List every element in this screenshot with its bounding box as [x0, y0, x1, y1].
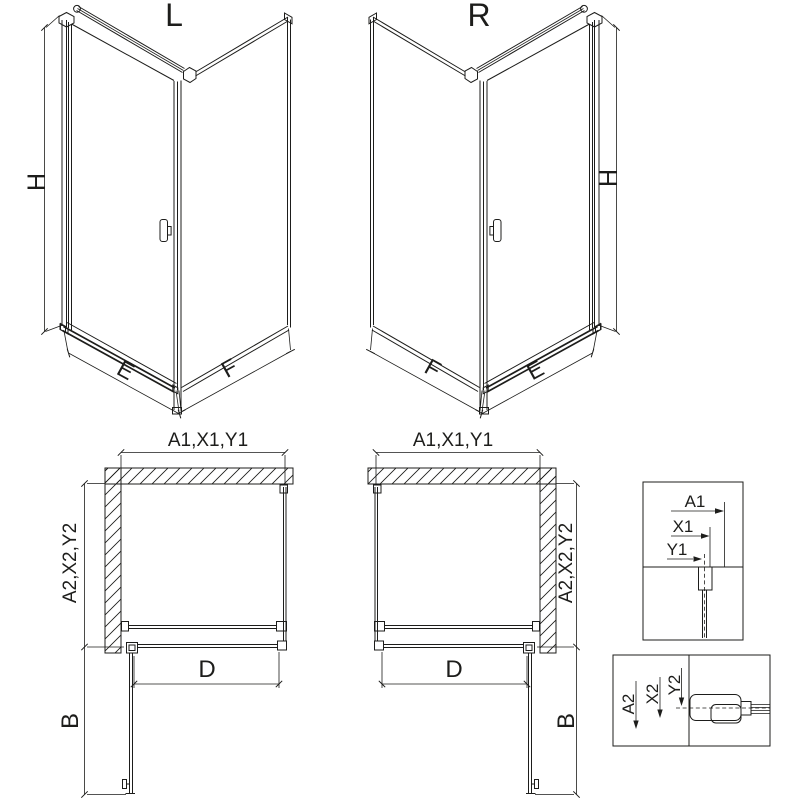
wall-section-side: [540, 468, 556, 653]
detail-dim-x1: X1: [673, 517, 694, 536]
plan-view-left: A1,X1,Y1 A2,X2,Y2 D B: [57, 430, 293, 798]
entry-dim-label: D: [445, 656, 462, 683]
bottom-rail-section: [690, 695, 741, 721]
arrow-right-icon: [701, 533, 710, 538]
door-width-dim-label: E: [522, 355, 548, 385]
arrow-right-icon: [715, 508, 724, 513]
variant-label-right: R: [467, 0, 490, 33]
enclosure-isometric-left: [41, 5, 294, 418]
entry-dim-label: D: [198, 656, 215, 683]
height-dim-label: H: [23, 173, 51, 191]
arrow-down-icon: [657, 710, 662, 719]
shower-enclosure-technical-drawing: L H E F R H F E A1,X1,Y1 A2,X2,Y2 D B A1…: [0, 0, 800, 800]
wall-section-top: [368, 468, 556, 484]
wall-profile-section: [699, 567, 713, 590]
arrow-down-icon: [633, 721, 638, 730]
side-panel-dim-label: F: [217, 353, 242, 383]
wall-section-top: [105, 468, 293, 484]
arrow-down-icon: [679, 698, 684, 707]
door-swing-dim-label: B: [57, 713, 84, 729]
wall-section-side: [105, 468, 121, 653]
iso-view-left: L H E F: [23, 0, 295, 418]
iso-view-right: R H F E: [366, 0, 623, 418]
detail-view-top-profile: A1 X1 Y1: [643, 482, 743, 640]
depth-dim-label: A2,X2,Y2: [60, 523, 81, 603]
arrow-right-icon: [694, 556, 703, 561]
width-dim-label: A1,X1,Y1: [168, 430, 248, 451]
detail-dim-x2: X2: [643, 684, 662, 705]
detail-dim-a1: A1: [685, 492, 706, 511]
height-dim-label: H: [595, 169, 623, 187]
depth-dim-label: A2,X2,Y2: [556, 523, 577, 603]
side-panel-dim-label: F: [420, 353, 445, 383]
door-swing-dim-label: B: [553, 713, 580, 729]
enclosure-isometric-right: [366, 5, 620, 418]
detail-dim-a2: A2: [619, 694, 638, 715]
detail-view-bottom-profile: A2 X2 Y2: [613, 655, 770, 746]
drawing-svg: L H E F R H F E A1,X1,Y1 A2,X2,Y2 D B A1…: [0, 0, 800, 800]
width-dim-label: A1,X1,Y1: [413, 430, 493, 451]
variant-label-left: L: [165, 0, 183, 33]
plan-view-right: A1,X1,Y1 A2,X2,Y2 D B: [368, 430, 580, 798]
detail-dim-y1: Y1: [667, 540, 688, 559]
